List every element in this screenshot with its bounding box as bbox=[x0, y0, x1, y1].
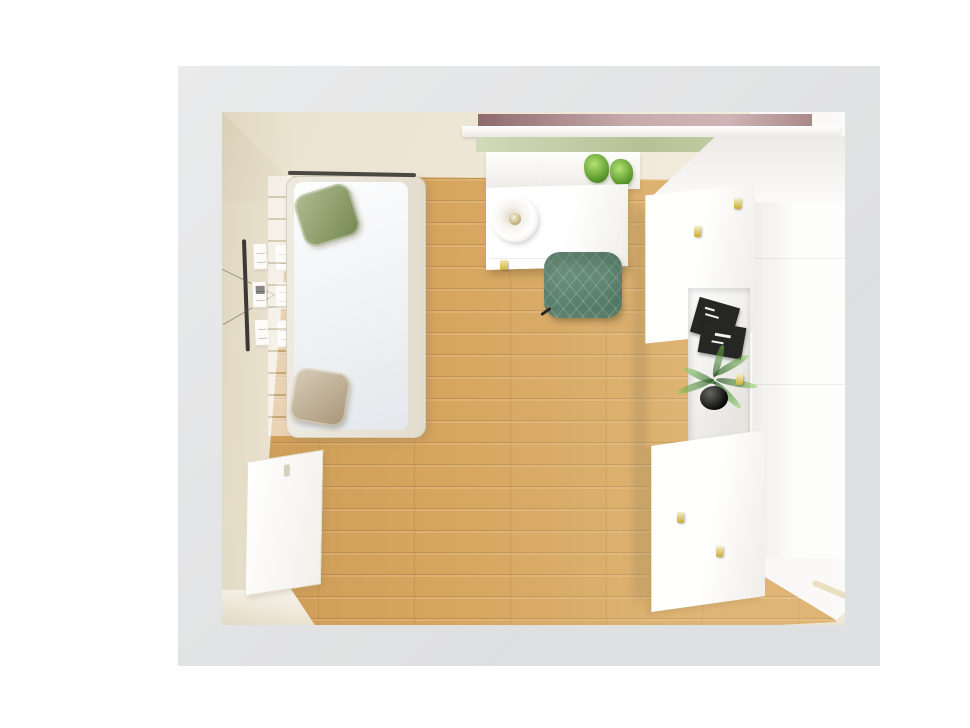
open-niche bbox=[688, 288, 750, 446]
drawer-knob bbox=[694, 226, 701, 237]
book-cover-mark bbox=[705, 307, 715, 312]
book-cover-mark bbox=[705, 313, 719, 319]
gallery-rail bbox=[242, 239, 250, 351]
beige-pillow bbox=[288, 366, 352, 428]
radiator-valve bbox=[284, 464, 290, 477]
lamp-bulb bbox=[509, 213, 521, 225]
drawer-knob bbox=[677, 512, 684, 523]
drawer-knob bbox=[736, 374, 743, 385]
potted-plant-small bbox=[584, 154, 609, 183]
plant-pot bbox=[700, 386, 728, 410]
drawer-knob bbox=[734, 198, 741, 209]
desk-foot bbox=[500, 260, 508, 270]
wardrobe-seam bbox=[753, 258, 845, 259]
book-cover-mark bbox=[715, 333, 731, 339]
gallery-print bbox=[252, 243, 268, 271]
wall-shelf bbox=[462, 126, 840, 137]
wardrobe-seam bbox=[753, 384, 845, 385]
chest-of-drawers bbox=[651, 430, 765, 612]
gallery-print bbox=[251, 281, 267, 309]
room-interior bbox=[222, 112, 845, 625]
radiator-panel bbox=[245, 450, 323, 596]
desk-chair bbox=[544, 252, 622, 318]
room-render bbox=[0, 0, 970, 728]
drawer-knob bbox=[716, 546, 723, 557]
potted-plant-small bbox=[610, 159, 633, 186]
